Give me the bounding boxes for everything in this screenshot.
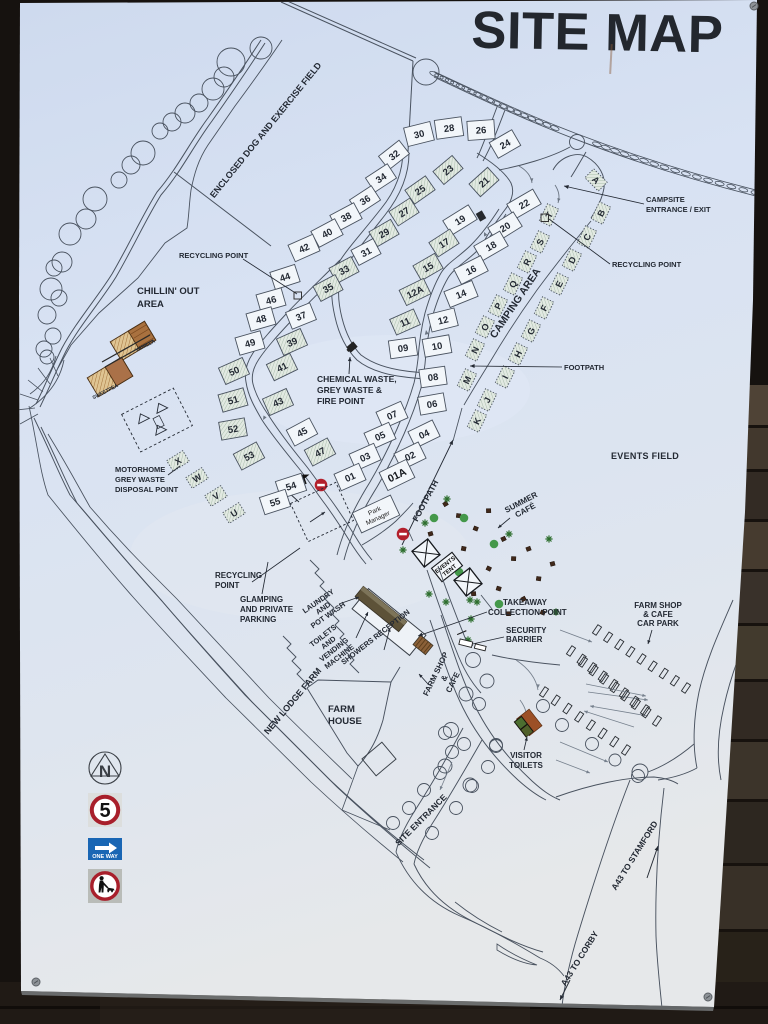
svg-text:10: 10	[431, 341, 443, 354]
svg-text:TAKEAWAY: TAKEAWAY	[503, 598, 548, 607]
svg-text:CHEMICAL WASTE,: CHEMICAL WASTE,	[317, 374, 397, 384]
svg-text:AND PRIVATE: AND PRIVATE	[240, 605, 294, 614]
svg-text:SECURITY: SECURITY	[506, 626, 547, 635]
svg-text:PARKING: PARKING	[240, 615, 276, 624]
svg-text:FARM: FARM	[328, 704, 355, 715]
svg-text:CHILLIN' OUT: CHILLIN' OUT	[137, 286, 200, 297]
svg-text:POINT: POINT	[215, 581, 240, 590]
svg-text:RECYCLING POINT: RECYCLING POINT	[612, 260, 682, 269]
svg-text:N: N	[99, 762, 111, 781]
svg-text:VISITOR: VISITOR	[510, 751, 542, 760]
svg-text:RECYCLING POINT: RECYCLING POINT	[179, 251, 249, 260]
svg-text:06: 06	[426, 399, 438, 412]
svg-text:08: 08	[427, 372, 439, 384]
svg-text:& CAFE: & CAFE	[643, 610, 673, 619]
svg-text:SITE MAP: SITE MAP	[471, 1, 724, 65]
svg-text:ONE WAY: ONE WAY	[92, 854, 118, 860]
svg-text:BARRIER: BARRIER	[506, 635, 543, 644]
svg-text:GREY WASTE: GREY WASTE	[115, 475, 165, 484]
svg-text:52: 52	[227, 424, 239, 437]
svg-text:MOTORHOME: MOTORHOME	[115, 465, 165, 474]
svg-text:FIRE POINT: FIRE POINT	[317, 396, 366, 406]
svg-text:GREY WASTE &: GREY WASTE &	[317, 385, 382, 395]
svg-text:ENTRANCE / EXIT: ENTRANCE / EXIT	[646, 205, 711, 214]
svg-text:GLAMPING: GLAMPING	[240, 595, 283, 604]
svg-text:FOOTPATH: FOOTPATH	[564, 363, 604, 372]
svg-text:AREA: AREA	[137, 299, 164, 310]
svg-text:26: 26	[475, 125, 486, 137]
svg-text:5: 5	[99, 800, 110, 822]
svg-text:COLLECTION POINT: COLLECTION POINT	[488, 608, 567, 617]
svg-text:TOILETS: TOILETS	[509, 761, 543, 770]
svg-text:FARM SHOP: FARM SHOP	[634, 601, 682, 610]
svg-text:RECYCLING: RECYCLING	[215, 571, 262, 580]
svg-text:HOUSE: HOUSE	[328, 716, 362, 727]
svg-text:28: 28	[443, 123, 455, 135]
svg-text:CAR PARK: CAR PARK	[637, 619, 679, 628]
svg-text:EVENTS FIELD: EVENTS FIELD	[611, 451, 679, 461]
svg-text:CAMPSITE: CAMPSITE	[646, 195, 685, 204]
svg-text:09: 09	[397, 343, 409, 355]
svg-text:DISPOSAL POINT: DISPOSAL POINT	[115, 485, 179, 494]
